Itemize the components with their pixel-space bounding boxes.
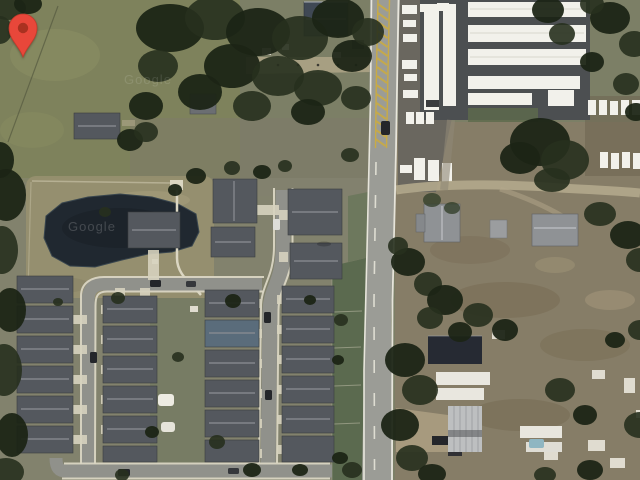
watermark-text-2: Google bbox=[124, 72, 172, 87]
location-pin[interactable] bbox=[0, 0, 46, 60]
satellite-map[interactable]: Google Google bbox=[0, 0, 640, 480]
marker-shadow bbox=[317, 242, 331, 247]
satellite-imagery: Google Google bbox=[0, 0, 640, 480]
pin-house bbox=[288, 189, 342, 235]
car-on-road bbox=[381, 121, 390, 135]
watermark-text: Google bbox=[68, 219, 116, 234]
pin-dot bbox=[18, 23, 28, 33]
pin-body bbox=[9, 14, 37, 57]
